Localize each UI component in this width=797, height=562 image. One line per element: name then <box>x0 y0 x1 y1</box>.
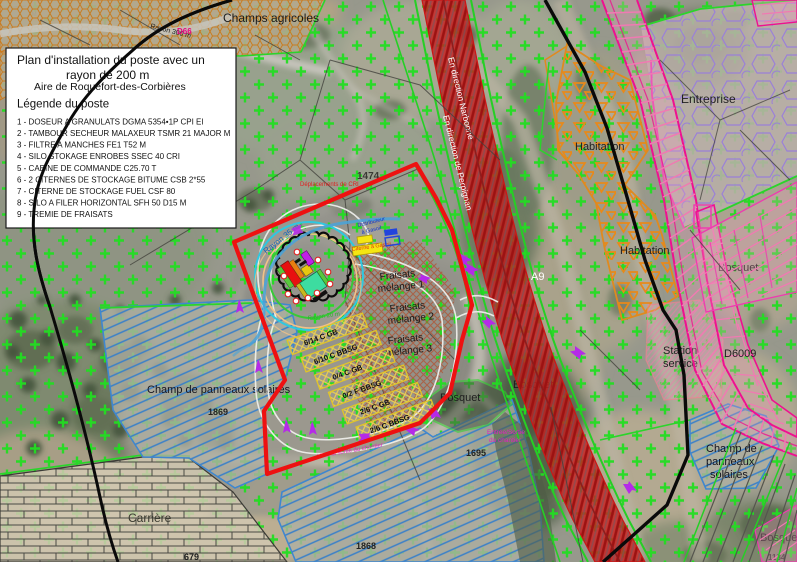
svg-text:Entrée/Sortie: Entrée/Sortie <box>487 429 525 436</box>
svg-text:Plan d'installation du poste a: Plan d'installation du poste avec un <box>17 53 205 67</box>
svg-text:1869: 1869 <box>208 407 228 417</box>
svg-text:Champs agricoles: Champs agricoles <box>223 11 319 25</box>
svg-text:2 - TAMBOUR SECHEUR MALAXEUR: 2 - TAMBOUR SECHEUR MALAXEUR TSMR 21 MAJ… <box>17 129 231 138</box>
svg-text:4 - SILO STOKAGE ENROBES SSE: 4 - SILO STOKAGE ENROBES SSEC 40 CRI <box>17 152 180 161</box>
svg-text:8 - SILO A FILER HORIZONTAL: 8 - SILO A FILER HORIZONTAL SFH 50 D15 M <box>17 199 187 208</box>
svg-text:A9: A9 <box>531 271 544 283</box>
svg-text:Carrière: Carrière <box>128 511 172 525</box>
svg-text:du chantier: du chantier <box>489 437 522 444</box>
svg-text:Entreprise: Entreprise <box>681 92 736 106</box>
svg-text:5 - CABINE DE COMMANDE C25.7: 5 - CABINE DE COMMANDE C25.70 T <box>17 164 157 173</box>
svg-text:D66: D66 <box>177 27 192 36</box>
svg-text:1868: 1868 <box>356 541 376 551</box>
svg-text:Légende du poste: Légende du poste <box>17 99 109 111</box>
svg-text:9 - TREMIE DE FRAISATS: 9 - TREMIE DE FRAISATS <box>17 210 113 219</box>
svg-text:7 - CITERNE DE STOCKAGE FUEL: 7 - CITERNE DE STOCKAGE FUEL CSF 80 <box>17 187 176 196</box>
svg-text:D6009: D6009 <box>724 348 756 360</box>
svg-text:Aire de Roquefort-des-Corbière: Aire de Roquefort-des-Corbières <box>34 81 186 93</box>
svg-text:3 - FILTRE A MANCHES FE1 T5: 3 - FILTRE A MANCHES FE1 T52 M <box>17 141 146 150</box>
svg-text:1 - DOSEUR A GRANULATS DGMA: 1 - DOSEUR A GRANULATS DGMA 5354•1P CPI … <box>17 117 204 126</box>
svg-text:Déplacements de CRI: Déplacements de CRI <box>300 182 359 188</box>
svg-text:Habitation: Habitation <box>575 141 625 153</box>
svg-text:6 - 2 CITERNES DE STOCKAGE B: 6 - 2 CITERNES DE STOCKAGE BITUME CSB 2*… <box>17 175 206 184</box>
svg-text:679: 679 <box>184 552 199 562</box>
svg-text:Champ de: Champ de <box>706 443 757 455</box>
svg-text:1695: 1695 <box>466 448 486 458</box>
